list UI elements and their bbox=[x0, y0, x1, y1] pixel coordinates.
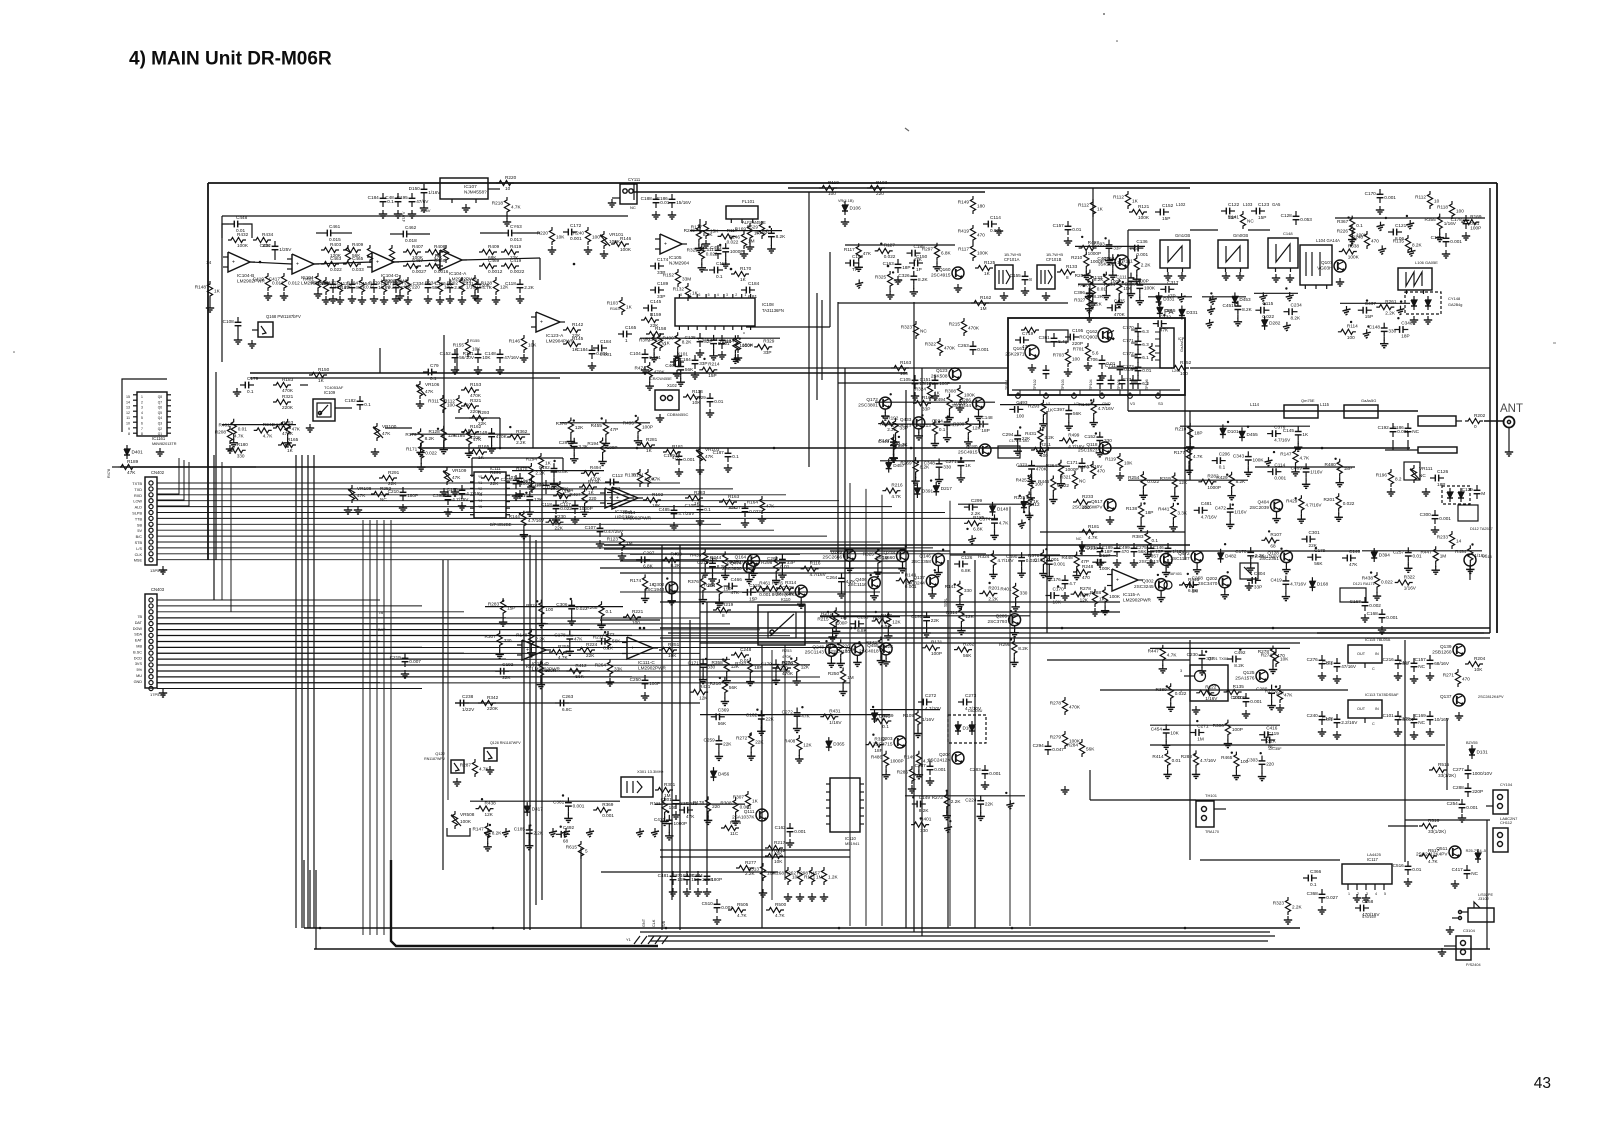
svg-text:0.01: 0.01 bbox=[780, 564, 790, 569]
svg-text:C192: C192 bbox=[502, 662, 514, 667]
svg-text:12K: 12K bbox=[972, 425, 981, 430]
svg-text:C361: C361 bbox=[1039, 335, 1051, 340]
svg-text:1/16V: 1/16V bbox=[1474, 553, 1487, 558]
svg-text:47K: 47K bbox=[686, 814, 695, 819]
svg-text:R308: R308 bbox=[720, 801, 732, 806]
svg-text:C224: C224 bbox=[965, 797, 977, 802]
svg-text:C155: C155 bbox=[1010, 273, 1022, 278]
svg-text:C300: C300 bbox=[1420, 512, 1432, 517]
svg-text:3VS: 3VS bbox=[135, 662, 143, 666]
svg-text:2.2K: 2.2K bbox=[988, 597, 999, 602]
svg-text:220K: 220K bbox=[487, 706, 499, 711]
svg-text:180: 180 bbox=[977, 204, 985, 209]
svg-text:Q137: Q137 bbox=[913, 575, 925, 580]
svg-text:470K: 470K bbox=[654, 370, 666, 375]
svg-text:R162: R162 bbox=[470, 424, 482, 429]
svg-text:0.001: 0.001 bbox=[1466, 805, 1478, 810]
svg-text:220P: 220P bbox=[1072, 341, 1083, 346]
svg-text:C272: C272 bbox=[782, 710, 794, 715]
svg-text:C303: C303 bbox=[1247, 758, 1259, 763]
svg-text:0.1: 0.1 bbox=[1152, 538, 1159, 543]
svg-text:R478: R478 bbox=[107, 469, 111, 478]
svg-text:470: 470 bbox=[1371, 239, 1379, 244]
svg-text:22K: 22K bbox=[650, 323, 659, 328]
svg-text:Q202: Q202 bbox=[1206, 576, 1218, 581]
svg-text:C368: C368 bbox=[1362, 899, 1374, 904]
svg-text:1: 1 bbox=[1348, 892, 1350, 896]
svg-text:56K: 56K bbox=[1086, 747, 1095, 752]
svg-text:47K: 47K bbox=[357, 493, 366, 498]
svg-text:2SC3444: 2SC3444 bbox=[951, 403, 971, 408]
svg-text:1000/10V: 1000/10V bbox=[1472, 771, 1493, 776]
svg-text:R287: R287 bbox=[460, 763, 472, 768]
svg-text:D391: D391 bbox=[922, 489, 934, 494]
svg-text:0.1: 0.1 bbox=[882, 724, 889, 729]
svg-text:D101: D101 bbox=[1227, 429, 1239, 434]
svg-text:0.01: 0.01 bbox=[1072, 227, 1082, 232]
svg-text:R217: R217 bbox=[774, 840, 786, 845]
svg-text:Q2: Q2 bbox=[158, 427, 162, 431]
svg-text:TXD: TXD bbox=[134, 488, 142, 492]
svg-text:R432: R432 bbox=[237, 232, 249, 237]
svg-text:22K: 22K bbox=[766, 716, 775, 721]
svg-text:0.01: 0.01 bbox=[1412, 867, 1422, 872]
svg-text:8: 8 bbox=[128, 432, 130, 436]
svg-text:0.022: 0.022 bbox=[1175, 691, 1187, 696]
svg-text:D417: D417 bbox=[532, 807, 544, 812]
svg-text:100K: 100K bbox=[1109, 594, 1121, 599]
svg-text:SDA: SDA bbox=[134, 633, 142, 637]
svg-text:15P: 15P bbox=[708, 373, 716, 378]
svg-text:C189: C189 bbox=[657, 281, 669, 286]
svg-text:10K: 10K bbox=[472, 347, 481, 352]
svg-text:220P: 220P bbox=[1472, 789, 1483, 794]
svg-text:GaAs5G: GaAs5G bbox=[1361, 398, 1376, 403]
svg-text:33P: 33P bbox=[699, 361, 707, 366]
svg-text:56K: 56K bbox=[718, 721, 727, 726]
svg-text:C148: C148 bbox=[485, 351, 497, 356]
svg-text:R138: R138 bbox=[1126, 506, 1138, 511]
svg-text:R224: R224 bbox=[586, 642, 598, 647]
svg-text:330: 330 bbox=[964, 588, 972, 593]
svg-text:330: 330 bbox=[504, 638, 512, 643]
svg-text:R419: R419 bbox=[510, 244, 522, 249]
svg-text:6.8K: 6.8K bbox=[973, 527, 984, 532]
svg-text:R446: R446 bbox=[1038, 479, 1050, 484]
svg-text:C148: C148 bbox=[981, 415, 993, 420]
svg-text:0.022: 0.022 bbox=[706, 251, 718, 256]
svg-text:R221: R221 bbox=[632, 609, 644, 614]
svg-text:R307: R307 bbox=[484, 634, 496, 639]
svg-text:15P: 15P bbox=[723, 587, 731, 592]
svg-text:C263: C263 bbox=[958, 343, 970, 348]
svg-text:2SC3913: 2SC3913 bbox=[1139, 559, 1159, 564]
svg-text:Q4: Q4 bbox=[158, 416, 162, 420]
svg-text:C165: C165 bbox=[625, 325, 637, 330]
svg-text:47K: 47K bbox=[863, 251, 872, 256]
svg-text:R322: R322 bbox=[1404, 574, 1416, 579]
svg-text:47K: 47K bbox=[914, 257, 923, 262]
svg-text:1000P: 1000P bbox=[1207, 485, 1221, 490]
svg-text:15P: 15P bbox=[1365, 314, 1373, 319]
svg-text:47/6V: 47/6V bbox=[416, 199, 429, 204]
svg-text:C79: C79 bbox=[430, 363, 439, 368]
svg-text:CF101A: CF101A bbox=[1004, 257, 1020, 262]
svg-text:Q289: Q289 bbox=[831, 549, 843, 554]
svg-text:100P: 100P bbox=[931, 651, 942, 656]
svg-text:LOW: LOW bbox=[133, 500, 142, 504]
svg-text:0.1: 0.1 bbox=[606, 609, 613, 614]
svg-text:Q123: Q123 bbox=[936, 368, 948, 373]
svg-text:R189: R189 bbox=[127, 459, 139, 464]
svg-text:0.013: 0.013 bbox=[510, 237, 522, 242]
svg-text:1M: 1M bbox=[1192, 589, 1199, 594]
svg-text:C706: C706 bbox=[1087, 357, 1099, 362]
svg-text:R277: R277 bbox=[526, 664, 538, 669]
svg-text:47P: 47P bbox=[610, 427, 618, 432]
svg-text:R188: R188 bbox=[1090, 590, 1102, 595]
svg-text:220: 220 bbox=[589, 496, 597, 501]
svg-text:C369: C369 bbox=[718, 708, 730, 713]
svg-text:R342: R342 bbox=[487, 695, 499, 700]
svg-text:R212: R212 bbox=[774, 848, 786, 853]
svg-text:1K: 1K bbox=[214, 289, 221, 294]
svg-text:R515: R515 bbox=[1438, 762, 1450, 767]
svg-text:R146: R146 bbox=[509, 339, 521, 344]
svg-text:R264: R264 bbox=[595, 663, 607, 668]
svg-text:1000P: 1000P bbox=[1065, 467, 1079, 472]
svg-text:R149: R149 bbox=[958, 200, 970, 205]
svg-text:C115: C115 bbox=[749, 583, 760, 588]
svg-text:VR109: VR109 bbox=[452, 468, 467, 473]
svg-text:100K: 100K bbox=[977, 251, 989, 256]
svg-text:0.001: 0.001 bbox=[1450, 239, 1462, 244]
svg-text:4.7K: 4.7K bbox=[923, 758, 934, 763]
svg-text:R438: R438 bbox=[1362, 576, 1374, 581]
svg-text:M6W82013TR: M6W82013TR bbox=[152, 442, 177, 446]
svg-text:IC109: IC109 bbox=[324, 390, 336, 395]
svg-text:4.7/16V: 4.7/16V bbox=[528, 518, 545, 523]
svg-text:B.SC: B.SC bbox=[133, 650, 142, 654]
svg-text:R107: R107 bbox=[1270, 532, 1282, 537]
svg-text:0.022: 0.022 bbox=[425, 451, 437, 456]
svg-text:1B.7W+B: 1B.7W+B bbox=[1004, 252, 1021, 257]
svg-text:C184: C184 bbox=[600, 339, 612, 344]
svg-text:R144: R144 bbox=[509, 514, 521, 519]
svg-text:1000P: 1000P bbox=[739, 343, 753, 348]
svg-text:11: 11 bbox=[126, 416, 130, 420]
svg-text:0.0027: 0.0027 bbox=[412, 269, 427, 274]
svg-text:R125: R125 bbox=[984, 260, 996, 265]
svg-text:4.7/16V: 4.7/16V bbox=[810, 572, 827, 577]
svg-text:R211: R211 bbox=[1040, 442, 1051, 447]
svg-text:0.022: 0.022 bbox=[727, 240, 739, 245]
svg-text:R494: R494 bbox=[934, 397, 946, 402]
svg-text:R497: R497 bbox=[569, 492, 581, 497]
svg-text:C419: C419 bbox=[253, 277, 265, 282]
svg-text:Q204: Q204 bbox=[939, 752, 951, 757]
svg-text:C107: C107 bbox=[585, 525, 597, 530]
svg-text:NJM4558?: NJM4558? bbox=[464, 190, 487, 195]
svg-text:Q108: Q108 bbox=[782, 585, 794, 590]
svg-text:6.8K: 6.8K bbox=[558, 469, 569, 474]
svg-text:R701: R701 bbox=[1073, 347, 1085, 352]
svg-text:0.033: 0.033 bbox=[352, 267, 364, 272]
svg-text:6.8K: 6.8K bbox=[941, 250, 952, 255]
svg-text:C361: C361 bbox=[553, 799, 565, 804]
svg-text:C185: C185 bbox=[514, 827, 526, 832]
svg-text:1B.7W+B: 1B.7W+B bbox=[1046, 252, 1063, 257]
svg-text:18P: 18P bbox=[902, 265, 910, 270]
svg-text:R103: R103 bbox=[607, 301, 619, 306]
svg-text:R298: R298 bbox=[797, 871, 809, 876]
svg-text:D455: D455 bbox=[1247, 432, 1259, 437]
svg-text:R499: R499 bbox=[1068, 432, 1080, 437]
svg-text:8.2K: 8.2K bbox=[703, 232, 714, 237]
svg-text:R118: R118 bbox=[826, 643, 837, 648]
svg-text:0.0012: 0.0012 bbox=[488, 269, 503, 274]
svg-text:R110: R110 bbox=[828, 180, 839, 185]
svg-text:C492: C492 bbox=[563, 825, 575, 830]
svg-text:R142: R142 bbox=[572, 322, 584, 327]
svg-text:TP102: TP102 bbox=[1033, 379, 1037, 390]
svg-text:C416: C416 bbox=[1266, 726, 1278, 731]
svg-text:C157: C157 bbox=[1053, 223, 1065, 228]
svg-text:C152: C152 bbox=[1162, 203, 1174, 208]
svg-text:R283: R283 bbox=[488, 602, 500, 607]
svg-text:1/16V: 1/16V bbox=[1234, 509, 1247, 514]
svg-text:470K: 470K bbox=[590, 477, 602, 482]
svg-text:R230: R230 bbox=[555, 514, 567, 519]
svg-text:56K: 56K bbox=[1314, 561, 1323, 566]
svg-text:2.2K: 2.2K bbox=[1141, 263, 1152, 268]
svg-text:56K: 56K bbox=[963, 653, 972, 658]
svg-text:2SC4915: 2SC4915 bbox=[931, 272, 951, 277]
svg-text:C465: C465 bbox=[352, 256, 364, 261]
svg-text:IC115-A: IC115-A bbox=[1123, 592, 1141, 597]
svg-text:33P: 33P bbox=[1254, 584, 1262, 589]
svg-text:0.1: 0.1 bbox=[939, 427, 946, 432]
svg-text:R121: R121 bbox=[1138, 204, 1150, 209]
svg-text:R431: R431 bbox=[829, 709, 841, 714]
svg-text:0.001: 0.001 bbox=[989, 771, 1001, 776]
svg-text:C127: C127 bbox=[730, 505, 742, 510]
svg-text:470: 470 bbox=[1097, 469, 1105, 474]
svg-text:Q164: Q164 bbox=[1103, 256, 1115, 261]
svg-text:K110: K110 bbox=[781, 597, 791, 602]
svg-text:470K: 470K bbox=[1069, 705, 1081, 710]
svg-text:NC: NC bbox=[1247, 219, 1254, 224]
svg-text:0.1: 0.1 bbox=[247, 389, 254, 394]
svg-text:100P: 100P bbox=[1232, 727, 1243, 732]
svg-text:M51941: M51941 bbox=[845, 841, 860, 846]
svg-text:C481: C481 bbox=[1201, 501, 1213, 506]
svg-text:D148: D148 bbox=[997, 506, 1009, 511]
svg-text:8.2K: 8.2K bbox=[492, 830, 503, 835]
svg-text:R145: R145 bbox=[572, 336, 584, 341]
svg-text:DGW: DGW bbox=[133, 627, 143, 631]
svg-text:R254: R254 bbox=[1075, 273, 1087, 278]
svg-text:Q164: Q164 bbox=[735, 554, 747, 559]
svg-text:C469: C469 bbox=[1291, 465, 1303, 470]
svg-text:15P: 15P bbox=[1162, 216, 1170, 221]
svg-text:100K: 100K bbox=[1253, 457, 1265, 462]
svg-text:C234: C234 bbox=[1291, 303, 1303, 308]
svg-text:R362: R362 bbox=[516, 429, 528, 434]
svg-text:1/16V: 1/16V bbox=[420, 208, 431, 213]
svg-text:NC: NC bbox=[1076, 537, 1082, 541]
svg-text:R114: R114 bbox=[1347, 324, 1358, 329]
svg-text:R233: R233 bbox=[1437, 535, 1449, 540]
svg-text:8.2K: 8.2K bbox=[425, 436, 436, 441]
svg-text:Q160: Q160 bbox=[939, 267, 951, 272]
svg-text:7: 7 bbox=[689, 293, 691, 297]
svg-text:R301: R301 bbox=[664, 782, 676, 787]
svg-text:C466: C466 bbox=[731, 577, 743, 582]
svg-text:2SB1260: 2SB1260 bbox=[1432, 649, 1452, 654]
svg-text:R408: R408 bbox=[434, 244, 446, 249]
svg-text:R494: R494 bbox=[590, 465, 602, 470]
svg-text:68: 68 bbox=[1270, 544, 1276, 549]
svg-text:0.01: 0.01 bbox=[1172, 758, 1182, 763]
svg-text:0.1: 0.1 bbox=[1356, 223, 1363, 228]
svg-text:D168: D168 bbox=[1317, 582, 1329, 587]
svg-text:1: 1 bbox=[744, 293, 746, 297]
svg-text:8: 8 bbox=[1066, 275, 1069, 280]
svg-text:56K: 56K bbox=[575, 674, 584, 679]
svg-text:10K: 10K bbox=[1124, 461, 1133, 466]
svg-text:22K: 22K bbox=[985, 801, 994, 806]
svg-text:Q8: Q8 bbox=[158, 395, 162, 399]
svg-text:R268: R268 bbox=[586, 605, 598, 610]
svg-text:C101: C101 bbox=[1383, 713, 1395, 718]
svg-text:CH112: CH112 bbox=[1500, 820, 1513, 825]
svg-text:2SC3801: 2SC3801 bbox=[858, 403, 878, 408]
svg-text:C206: C206 bbox=[1219, 451, 1231, 456]
svg-text:330: 330 bbox=[1020, 590, 1028, 595]
svg-text:C417: C417 bbox=[269, 277, 281, 282]
svg-text:10K: 10K bbox=[1474, 667, 1483, 672]
svg-text:R132: R132 bbox=[673, 287, 685, 292]
svg-text:NC: NC bbox=[1418, 664, 1425, 669]
svg-text:100K: 100K bbox=[545, 668, 557, 673]
svg-text:C184: C184 bbox=[748, 281, 760, 286]
svg-text:R414: R414 bbox=[1152, 754, 1164, 759]
svg-text:1/16V: 1/16V bbox=[922, 717, 935, 722]
svg-text:C304: C304 bbox=[1254, 571, 1266, 576]
svg-text:1K: 1K bbox=[588, 490, 595, 495]
svg-text:1K: 1K bbox=[984, 271, 991, 276]
svg-text:R278: R278 bbox=[1258, 649, 1270, 654]
svg-text:CDBM455C: CDBM455C bbox=[667, 412, 688, 417]
svg-text:47/16V: 47/16V bbox=[1341, 664, 1357, 669]
svg-text:C126: C126 bbox=[1437, 469, 1449, 474]
svg-text:470K: 470K bbox=[282, 388, 294, 393]
svg-text:C136: C136 bbox=[1136, 239, 1148, 244]
svg-text:R255: R255 bbox=[558, 644, 570, 649]
svg-text:R447: R447 bbox=[1148, 648, 1160, 653]
svg-text:2.2K: 2.2K bbox=[535, 636, 546, 641]
svg-text:CR/CW455E: CR/CW455E bbox=[650, 377, 672, 381]
svg-text:R147: R147 bbox=[472, 826, 484, 831]
svg-text:IC120-A: IC120-A bbox=[615, 509, 633, 514]
svg-text:0.1: 0.1 bbox=[1219, 465, 1226, 470]
svg-text:R435: R435 bbox=[690, 553, 702, 558]
svg-text:9: 9 bbox=[128, 427, 130, 431]
svg-text:8.2K: 8.2K bbox=[682, 340, 693, 345]
svg-text:56K: 56K bbox=[612, 639, 621, 644]
svg-text:8.2K: 8.2K bbox=[1242, 307, 1253, 312]
svg-text:100P: 100P bbox=[607, 445, 618, 450]
svg-text:LM2904PWR: LM2904PWR bbox=[546, 338, 574, 343]
svg-text:4.7K: 4.7K bbox=[558, 655, 569, 660]
svg-text:C374: C374 bbox=[979, 516, 991, 521]
svg-text:0.001: 0.001 bbox=[570, 236, 582, 241]
svg-text:CLK: CLK bbox=[135, 553, 143, 557]
svg-text:C168: C168 bbox=[1367, 611, 1379, 616]
svg-text:47K: 47K bbox=[127, 470, 136, 475]
svg-text:470K: 470K bbox=[944, 346, 956, 351]
svg-text:1/25V: 1/25V bbox=[279, 247, 292, 252]
svg-text:TP106: TP106 bbox=[1145, 379, 1149, 390]
svg-text:33P: 33P bbox=[763, 350, 771, 355]
svg-text:0.047: 0.047 bbox=[1052, 747, 1064, 752]
svg-text:12K: 12K bbox=[485, 812, 494, 817]
svg-text:C516: C516 bbox=[1393, 863, 1405, 868]
svg-text:2.2K: 2.2K bbox=[535, 471, 546, 476]
svg-text:C146: C146 bbox=[1153, 545, 1165, 550]
svg-text:1K: 1K bbox=[318, 378, 325, 383]
svg-text:0.1: 0.1 bbox=[364, 402, 371, 407]
svg-text:C195: C195 bbox=[1072, 328, 1084, 333]
svg-text:0.022: 0.022 bbox=[1343, 501, 1355, 506]
svg-text:47K: 47K bbox=[425, 389, 434, 394]
svg-text:D453: D453 bbox=[1239, 297, 1251, 302]
svg-text:R250: R250 bbox=[828, 671, 840, 676]
svg-text:VR106: VR106 bbox=[425, 382, 440, 387]
svg-text:0.01: 0.01 bbox=[714, 399, 724, 404]
svg-text:C210: C210 bbox=[388, 489, 400, 494]
svg-text:6.3: 6.3 bbox=[1142, 342, 1149, 347]
svg-text:0.001: 0.001 bbox=[1384, 195, 1396, 200]
svg-text:2.2K: 2.2K bbox=[1044, 435, 1055, 440]
svg-text:IC113 TA78DS5AF: IC113 TA78DS5AF bbox=[1365, 692, 1399, 697]
svg-text:470K: 470K bbox=[845, 647, 857, 652]
svg-text:10/16V: 10/16V bbox=[1434, 717, 1450, 722]
svg-text:22K: 22K bbox=[555, 525, 564, 530]
svg-text:2SC2412K4PV: 2SC2412K4PV bbox=[1416, 851, 1448, 856]
svg-text:R122: R122 bbox=[1205, 685, 1217, 690]
svg-text:R277: R277 bbox=[745, 860, 757, 865]
svg-text:100: 100 bbox=[592, 235, 600, 240]
svg-text:47K: 47K bbox=[382, 431, 391, 436]
svg-text:R204: R204 bbox=[1474, 656, 1486, 661]
svg-text:C417: C417 bbox=[1452, 867, 1464, 872]
svg-text:0.01: 0.01 bbox=[1097, 287, 1107, 292]
svg-text:D150: D150 bbox=[409, 186, 421, 191]
svg-text:R429: R429 bbox=[1216, 475, 1228, 480]
svg-text:D401: D401 bbox=[132, 450, 144, 455]
svg-text:C348: C348 bbox=[1401, 320, 1413, 325]
svg-text:22K: 22K bbox=[1309, 543, 1318, 548]
svg-text:47K: 47K bbox=[1349, 562, 1358, 567]
svg-text:7B: 7B bbox=[137, 615, 142, 619]
svg-text:1K: 1K bbox=[626, 305, 633, 310]
svg-text:R240: R240 bbox=[573, 231, 585, 236]
svg-text:R133: R133 bbox=[625, 473, 637, 478]
svg-text:C184: C184 bbox=[680, 357, 692, 362]
svg-text:R270: R270 bbox=[1078, 465, 1090, 470]
